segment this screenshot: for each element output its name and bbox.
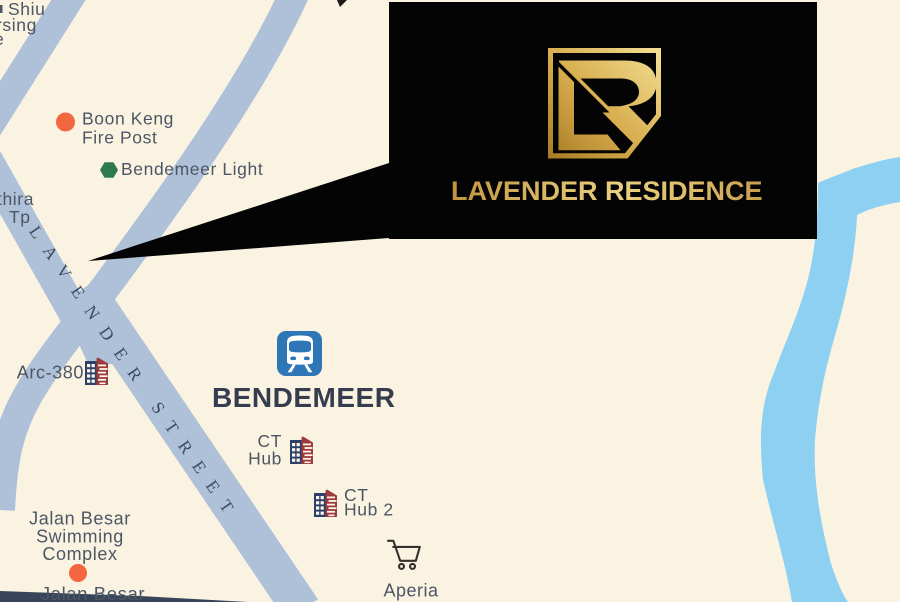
svg-text:Fire Post: Fire Post bbox=[82, 128, 157, 148]
svg-text:Bendemeer Light: Bendemeer Light bbox=[121, 159, 263, 179]
svg-text:Arc-380: Arc-380 bbox=[17, 363, 84, 383]
svg-text:thira: thira bbox=[0, 189, 34, 209]
svg-text:Complex: Complex bbox=[42, 544, 117, 564]
svg-text:Hub: Hub bbox=[248, 449, 282, 469]
svg-text:Boon Keng: Boon Keng bbox=[82, 109, 174, 129]
svg-text:Aperia: Aperia bbox=[383, 581, 439, 601]
svg-text:Jalan Besar: Jalan Besar bbox=[41, 583, 145, 602]
svg-text:rsing: rsing bbox=[0, 15, 37, 35]
svg-text:e: e bbox=[0, 29, 4, 49]
svg-text:Tp: Tp bbox=[9, 207, 31, 227]
svg-text:BENDEMEER: BENDEMEER bbox=[212, 382, 395, 413]
svg-text:LAVENDER RESIDENCE: LAVENDER RESIDENCE bbox=[451, 176, 763, 206]
svg-text:Hub 2: Hub 2 bbox=[344, 500, 394, 520]
